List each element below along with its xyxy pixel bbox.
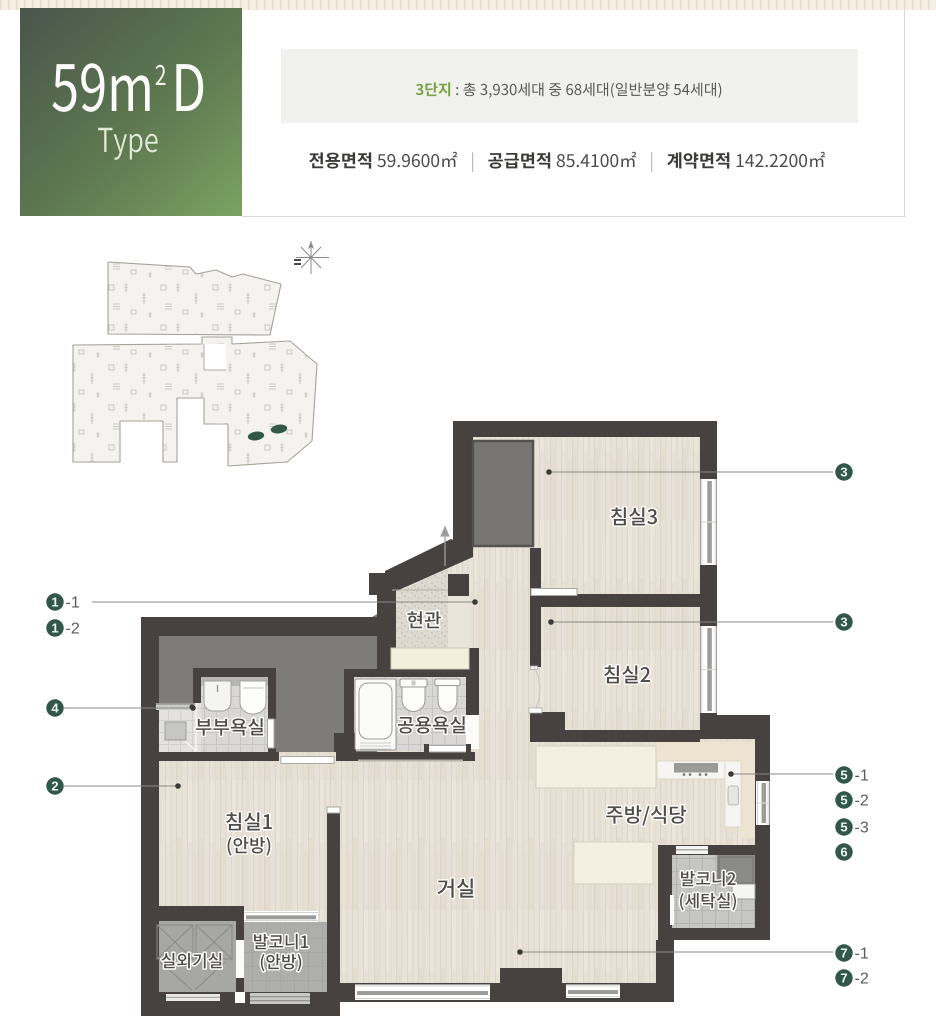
svg-text:2: 2 — [51, 779, 58, 794]
svg-text:3: 3 — [840, 615, 847, 630]
svg-text:-3: -3 — [855, 820, 869, 837]
svg-text:7: 7 — [840, 971, 847, 986]
svg-text:-2: -2 — [855, 793, 869, 810]
svg-text:-2: -2 — [66, 621, 80, 638]
svg-text:-1: -1 — [855, 946, 869, 963]
svg-text:5: 5 — [840, 768, 847, 783]
svg-text:6: 6 — [840, 845, 847, 860]
svg-text:1: 1 — [51, 595, 58, 610]
svg-text:-1: -1 — [66, 595, 80, 612]
svg-text:1: 1 — [51, 621, 58, 636]
svg-text:5: 5 — [840, 793, 847, 808]
svg-text:-1: -1 — [855, 768, 869, 785]
svg-text:4: 4 — [51, 701, 59, 716]
svg-text:-2: -2 — [855, 971, 869, 988]
svg-text:3: 3 — [840, 465, 847, 480]
svg-text:5: 5 — [840, 820, 847, 835]
svg-text:7: 7 — [840, 946, 847, 961]
